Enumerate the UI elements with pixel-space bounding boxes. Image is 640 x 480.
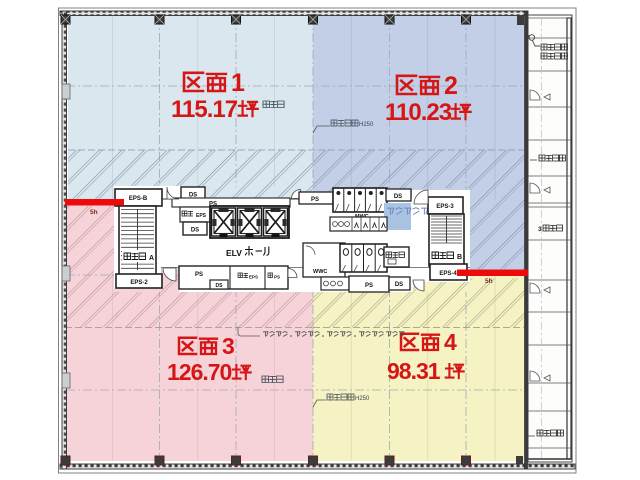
svg-text:WWC: WWC bbox=[313, 269, 327, 275]
svg-text:2: 2 bbox=[444, 72, 458, 100]
svg-text:EPS: EPS bbox=[196, 213, 207, 219]
svg-text:PS: PS bbox=[274, 275, 280, 280]
svg-text:126.70: 126.70 bbox=[167, 359, 232, 385]
svg-text:115.17: 115.17 bbox=[171, 96, 238, 123]
svg-text:ELV: ELV bbox=[226, 248, 242, 258]
svg-text:DS: DS bbox=[395, 282, 403, 288]
svg-text:DS: DS bbox=[191, 228, 199, 234]
svg-text:98.31: 98.31 bbox=[387, 358, 441, 384]
svg-text:110.23: 110.23 bbox=[385, 99, 452, 126]
svg-text:1: 1 bbox=[231, 69, 245, 97]
svg-text:PS: PS bbox=[195, 272, 203, 278]
svg-text:A: A bbox=[149, 255, 154, 262]
svg-text:5h: 5h bbox=[485, 278, 493, 285]
svg-text:EPS: EPS bbox=[249, 275, 258, 280]
svg-text:3: 3 bbox=[222, 333, 235, 359]
svg-text:4: 4 bbox=[444, 329, 457, 355]
svg-text:H250: H250 bbox=[355, 396, 370, 402]
svg-text:EPS-2: EPS-2 bbox=[130, 280, 148, 286]
svg-text:EPS-4: EPS-4 bbox=[439, 271, 457, 277]
svg-text:EPS-B: EPS-B bbox=[129, 196, 148, 202]
svg-text:H250: H250 bbox=[359, 122, 374, 128]
svg-text:5h: 5h bbox=[90, 209, 98, 216]
svg-text:PS: PS bbox=[311, 197, 319, 203]
svg-text:DS: DS bbox=[216, 283, 224, 289]
svg-text:3: 3 bbox=[538, 226, 542, 233]
svg-text:DS: DS bbox=[394, 194, 402, 200]
svg-text:EPS-3: EPS-3 bbox=[436, 204, 454, 210]
svg-text:PS: PS bbox=[365, 283, 373, 289]
svg-text:B: B bbox=[457, 254, 462, 261]
